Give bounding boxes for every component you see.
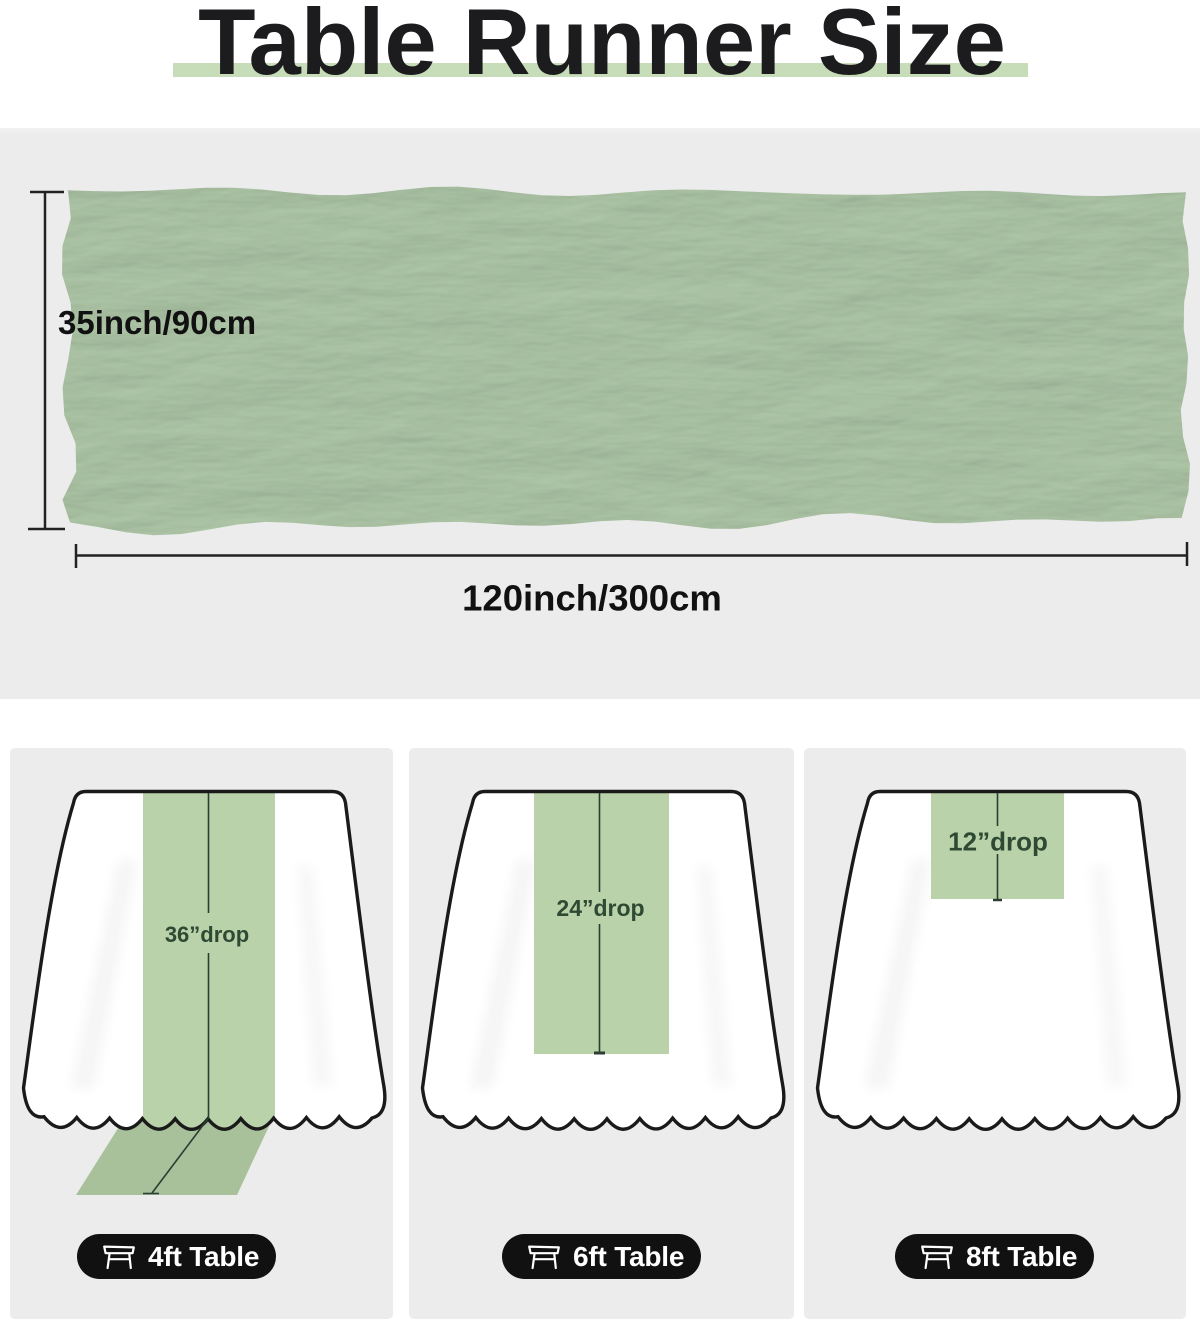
svg-text:24”drop: 24”drop xyxy=(556,895,644,921)
svg-text:12”drop: 12”drop xyxy=(948,827,1048,857)
svg-text:36”drop: 36”drop xyxy=(165,922,249,947)
svg-text:120inch/300cm: 120inch/300cm xyxy=(462,578,722,619)
svg-text:35inch/90cm: 35inch/90cm xyxy=(58,304,256,341)
